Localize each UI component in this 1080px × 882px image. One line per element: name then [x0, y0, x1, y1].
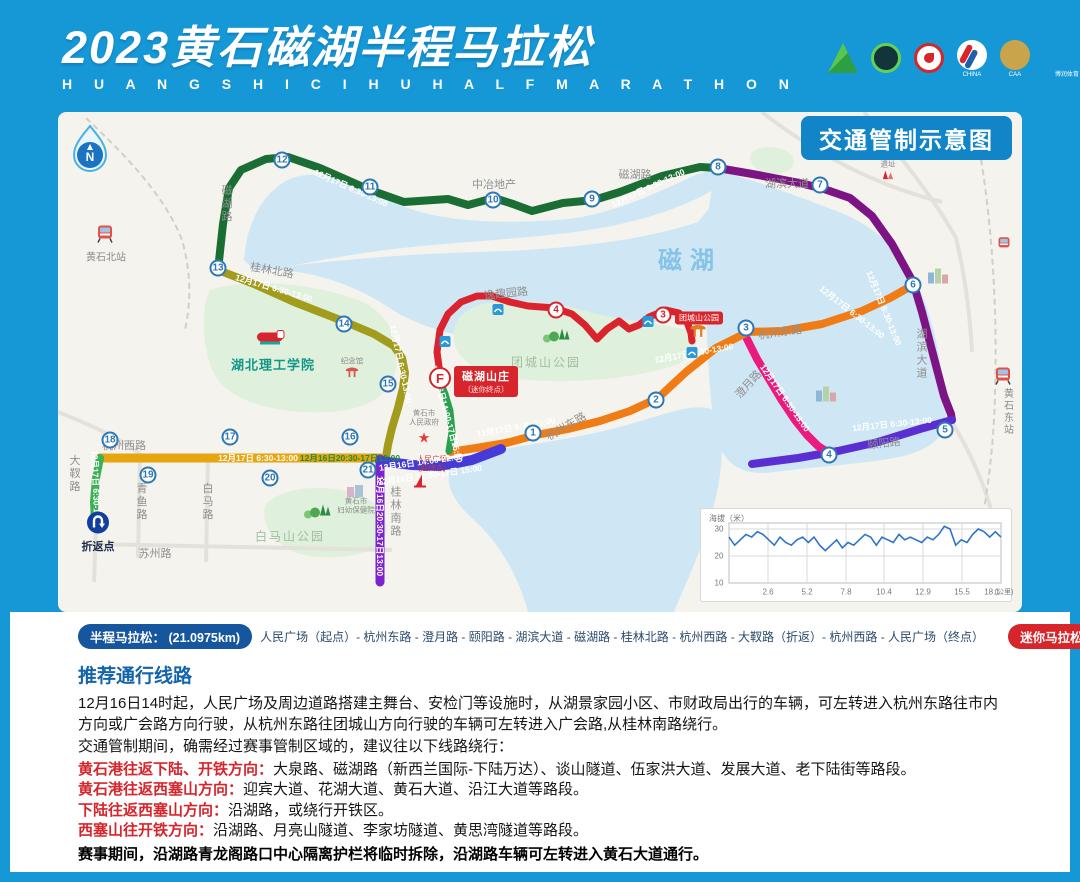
- km-point-marker: 11: [362, 179, 379, 196]
- header: 2023黄石磁湖半程马拉松 H U A N G S H I C I H U H …: [0, 0, 1080, 112]
- map-row: 交通管制示意图 N ★: [0, 112, 1080, 612]
- detour-line: 下陆往返西塞山方向：沿湖路，或绕行开铁区。: [78, 801, 1010, 822]
- map-label: 白马路: [199, 483, 215, 522]
- map-label: 苏州路: [139, 545, 172, 561]
- event-subtitle: H U A N G S H I C I H U H A L F M A R A …: [62, 76, 798, 92]
- x-tick: 10.4: [876, 588, 892, 597]
- sponsor-logo-caption: CAA: [1009, 72, 1021, 79]
- y-tick: 30: [715, 525, 724, 534]
- buildings-icon: [926, 267, 950, 290]
- detour-direction: 黄石港往返西塞山方向：: [78, 781, 243, 798]
- train-station-icon: [96, 224, 114, 249]
- x-tick: 18.1: [984, 588, 1000, 597]
- sponsor-logo-caption: 博润体育: [1055, 72, 1079, 79]
- train-station-icon: [994, 366, 1012, 391]
- trees-icon: [540, 326, 570, 351]
- buildings-icon: [814, 385, 838, 408]
- km-point-marker: 3: [738, 320, 755, 337]
- map-label: 折返点: [82, 538, 115, 554]
- km-point-marker: 13: [210, 260, 227, 277]
- km-point-marker: 4: [821, 447, 838, 464]
- km-point-marker: 9: [584, 191, 601, 208]
- legend-mini-marathon: 迷你马拉松： (5km) 人民广场（起点）- 杭州东路 - 逸趣园路 - 磁湖山…: [1008, 624, 1080, 649]
- map-label: 磁湖: [658, 241, 722, 276]
- detour-roads: 沿湖路，或绕行开铁区。: [228, 802, 393, 819]
- sponsor-logo-icon: [826, 39, 860, 79]
- bridge-icon: [493, 302, 504, 320]
- bridge-icon: [687, 345, 698, 363]
- km-point-marker: 19: [140, 467, 157, 484]
- mini-finish-note: 〔迷你终点〕: [462, 384, 510, 395]
- notice-title: 推荐通行线路: [78, 661, 1010, 688]
- route-map: 交通管制示意图 N ★: [58, 112, 1022, 612]
- sponsor-logo-disc: [957, 40, 987, 70]
- detour-direction: 下陆往返西塞山方向：: [78, 802, 228, 819]
- km-point-marker: 16: [342, 429, 359, 446]
- y-tick: 20: [715, 552, 724, 561]
- detour-roads: 大泉路、磁湖路（新西兰国际-下陆万达）、谈山隧道、伍家洪大道、发展大道、老下陆街…: [273, 761, 916, 778]
- elevation-chart: 海拔（米） 302010 2.65.: [700, 508, 1012, 602]
- mini-marathon-pill: 迷你马拉松： (5km): [1008, 624, 1080, 649]
- bridge-icon: [440, 334, 451, 352]
- km-point-marker: 7: [812, 177, 829, 194]
- map-label: 大靫路: [66, 455, 82, 494]
- km-point-marker: 12: [274, 152, 291, 169]
- map-label: 黄石市 人民政府: [409, 409, 439, 426]
- km-point-marker: 5: [937, 422, 954, 439]
- map-label: 桂林南路: [387, 486, 403, 538]
- km-point-marker: 3: [655, 307, 672, 324]
- half-marathon-pill: 半程马拉松： (21.0975km): [78, 624, 252, 649]
- map-label: 白马山公园: [255, 528, 325, 545]
- hospital-building-icon: [346, 484, 364, 502]
- train-station-icon: [997, 236, 1011, 257]
- x-tick: 2.6: [762, 588, 773, 597]
- map-label: 磁湖路: [619, 166, 652, 182]
- svg-text:N: N: [86, 150, 95, 164]
- legend: 半程马拉松： (21.0975km) 人民广场（起点）- 杭州东路 - 澄月路 …: [10, 612, 1070, 653]
- trees-icon: [301, 502, 331, 527]
- km-point-marker: 15: [380, 376, 397, 393]
- legend-half-marathon: 半程马拉松： (21.0975km) 人民广场（起点）- 杭州东路 - 澄月路 …: [78, 624, 984, 649]
- sponsor-logo-disc: [828, 43, 858, 73]
- map-label: 黄石北站: [86, 249, 126, 264]
- mini-finish-marker: F: [429, 367, 451, 389]
- sponsor-logo-disc: [914, 43, 944, 73]
- km-point-marker: 8: [710, 159, 727, 176]
- memorial-gate-icon: [344, 365, 360, 383]
- sponsor-logo-icon: CHINA: [955, 39, 989, 79]
- sponsor-logo-disc: [1052, 40, 1080, 70]
- notice-paragraph-1: 12月16日14时起，人民广场及周边道路搭建主舞台、安检门等设施时，从湖景家园小…: [78, 694, 1010, 735]
- detour-line: 西塞山往开铁方向：沿湖路、月亮山隧道、李家坊隧道、黄思湾隧道等路段。: [78, 821, 1010, 842]
- detour-line: 黄石港往返西塞山方向：迎宾大道、花湖大道、黄石大道、沿江大道等路段。: [78, 780, 1010, 801]
- km-point-marker: 14: [336, 316, 353, 333]
- bridge-icon: [643, 314, 654, 332]
- peoples-square-monument-icon: [413, 473, 427, 494]
- sponsor-logo-icon: [912, 39, 946, 79]
- event-title: 2023黄石磁湖半程马拉松: [62, 24, 798, 71]
- sponsor-logo-disc: [871, 43, 901, 73]
- map-label: 磁湖路: [218, 185, 234, 224]
- x-tick: 7.8: [840, 588, 851, 597]
- map-label: 中冶地产: [472, 176, 516, 192]
- map-label: 颐阳路: [867, 433, 901, 452]
- sponsor-logo-icon: [869, 39, 903, 79]
- km-point-marker: 18: [102, 432, 119, 449]
- title-block: 2023黄石磁湖半程马拉松 H U A N G S H I C I H U H …: [0, 20, 798, 91]
- sponsor-logo-disc: [1000, 40, 1030, 70]
- x-tick: 15.5: [954, 588, 970, 597]
- detour-line: 黄石港往返下陆、开铁方向：大泉路、磁湖路（新西兰国际-下陆万达）、谈山隧道、伍家…: [78, 760, 1010, 781]
- government-star-icon: ★: [418, 430, 431, 447]
- lake-south: [449, 407, 722, 612]
- mini-finish-name: 磁湖山庄: [462, 368, 510, 384]
- km-point-marker: 2: [648, 392, 665, 409]
- recommended-routes-section: 推荐通行线路 12月16日14时起，人民广场及周边道路搭建主舞台、安检门等设施时…: [10, 653, 1070, 866]
- notice-final-line: 赛事期间，沿湖路青龙阁路口中心隔离护栏将临时拆除，沿湖路车辆可左转进入黄石大道通…: [78, 844, 1010, 866]
- map-label: 湖滨大道: [765, 175, 809, 191]
- half-marathon-route: 人民广场（起点）- 杭州东路 - 澄月路 - 颐阳路 - 湖滨大道 - 磁湖路 …: [260, 628, 984, 645]
- cement-ruin-icon: [880, 167, 896, 185]
- uturn-icon: [86, 511, 110, 540]
- km-point-marker: 1: [525, 425, 542, 442]
- bottom-panel: 半程马拉松： (21.0975km) 人民广场（起点）- 杭州东路 - 澄月路 …: [10, 612, 1070, 872]
- map-label: 黄石东站: [1000, 388, 1015, 436]
- y-tick: 10: [715, 579, 724, 588]
- mini-finish-badge: 磁湖山庄 〔迷你终点〕: [454, 366, 518, 397]
- elevation-axis-label: 海拔（米）: [709, 513, 749, 524]
- notice-paragraph-2: 交通管制期间，确需经过赛事管制区域的，建议往以下线路绕行：: [78, 737, 1010, 758]
- traffic-control-badge: 交通管制示意图: [801, 116, 1012, 160]
- map-label: 湖滨大道: [913, 328, 929, 380]
- km-point-marker: 21: [360, 462, 377, 479]
- detour-list: 黄石港往返下陆、开铁方向：大泉路、磁湖路（新西兰国际-下陆万达）、谈山隧道、伍家…: [78, 760, 1010, 842]
- x-tick: 12.9: [915, 588, 931, 597]
- km-point-marker: 10: [485, 192, 502, 209]
- km-point-marker: 6: [905, 277, 922, 294]
- map-label: 青鱼路: [133, 483, 149, 522]
- detour-roads: 迎宾大道、花湖大道、黄石大道、沿江大道等路段。: [243, 781, 588, 798]
- park-gate-icon: [688, 323, 708, 343]
- map-label: 湖北理工学院: [231, 355, 315, 374]
- map-label: 团城山公园: [511, 354, 581, 371]
- park-small-ne: [750, 147, 793, 174]
- university-building-icon: [255, 329, 289, 352]
- sponsor-logo-icon: CAA: [998, 39, 1032, 79]
- detour-direction: 黄石港往返下陆、开铁方向：: [78, 761, 273, 778]
- sponsor-logo-caption: CHINA: [963, 72, 982, 79]
- sponsor-logo-row: CHINA CAA 博润体育 中国体育彩票: [826, 39, 1080, 79]
- compass-icon: N: [72, 124, 108, 172]
- route-time-label: 12月16日20:30-17日13:00: [374, 476, 386, 576]
- detour-roads: 沿湖路、月亮山隧道、李家坊隧道、黄思湾隧道等路段。: [213, 822, 588, 839]
- route-time-label: 12月17日 6:30-13:00: [218, 452, 298, 464]
- km-point-marker: 17: [222, 429, 239, 446]
- km-point-marker: 4: [548, 302, 565, 319]
- km-point-marker: 20: [262, 470, 279, 487]
- detour-direction: 西塞山往开铁方向：: [78, 822, 213, 839]
- x-tick: 5.2: [801, 588, 812, 597]
- sponsor-logo-icon: 博润体育: [1041, 39, 1080, 79]
